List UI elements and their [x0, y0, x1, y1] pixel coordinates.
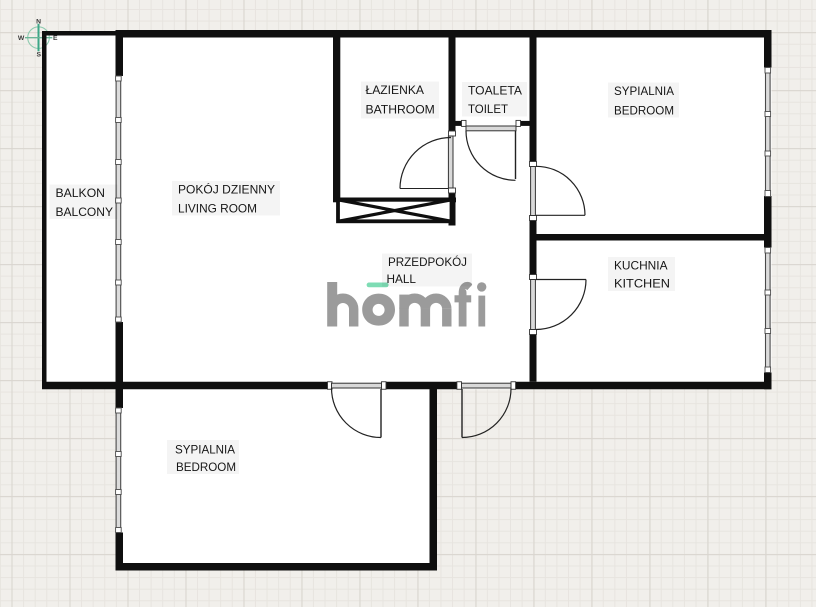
svg-text:N: N [36, 18, 41, 25]
svg-text:BATHROOM: BATHROOM [366, 103, 435, 117]
svg-text:TOALETA: TOALETA [468, 84, 522, 98]
svg-text:TOILET: TOILET [468, 102, 509, 116]
svg-text:E: E [53, 35, 58, 42]
svg-text:BEDROOM: BEDROOM [614, 104, 674, 118]
svg-text:HALL: HALL [387, 272, 417, 286]
svg-text:BEDROOM: BEDROOM [176, 460, 236, 474]
svg-text:PRZEDPOKÓJ: PRZEDPOKÓJ [388, 254, 467, 269]
svg-text:W: W [18, 35, 25, 42]
svg-text:SYPIALNIA: SYPIALNIA [175, 443, 235, 457]
svg-text:BALKON: BALKON [56, 186, 106, 200]
svg-text:S: S [37, 52, 42, 59]
svg-text:ŁAZIENKA: ŁAZIENKA [366, 83, 425, 97]
svg-text:KUCHNIA: KUCHNIA [614, 259, 668, 273]
svg-text:POKÓJ DZIENNY: POKÓJ DZIENNY [178, 182, 275, 197]
svg-text:SYPIALNIA: SYPIALNIA [614, 84, 674, 98]
svg-text:KITCHEN: KITCHEN [614, 277, 670, 291]
svg-text:LIVING ROOM: LIVING ROOM [178, 202, 257, 216]
svg-text:BALCONY: BALCONY [56, 205, 114, 219]
